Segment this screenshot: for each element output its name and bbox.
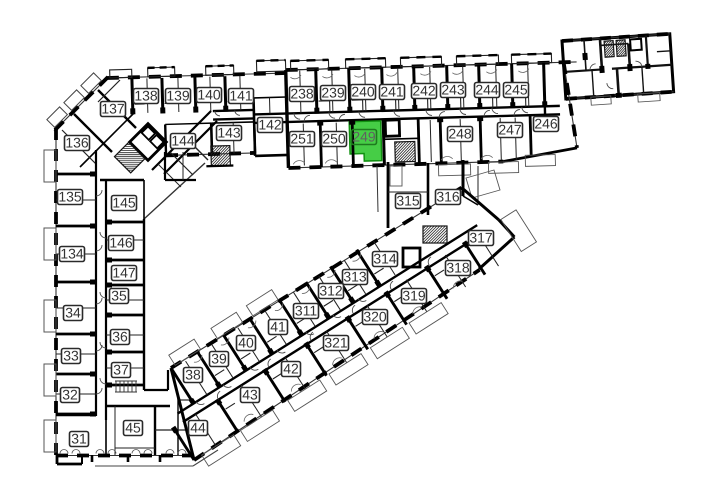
svg-text:147: 147: [112, 265, 136, 281]
svg-text:40: 40: [238, 335, 254, 351]
svg-text:251: 251: [290, 131, 314, 147]
svg-text:247: 247: [498, 122, 522, 138]
svg-text:311: 311: [295, 303, 318, 319]
svg-text:238: 238: [290, 86, 314, 102]
svg-text:143: 143: [217, 125, 241, 141]
svg-text:317: 317: [469, 230, 493, 246]
svg-text:36: 36: [112, 329, 128, 345]
svg-text:142: 142: [258, 117, 282, 133]
svg-text:239: 239: [321, 85, 345, 101]
svg-text:249: 249: [352, 129, 376, 145]
svg-text:33: 33: [63, 348, 79, 364]
svg-text:38: 38: [185, 367, 201, 383]
svg-text:136: 136: [65, 135, 89, 151]
svg-text:248: 248: [448, 126, 472, 142]
svg-text:31: 31: [71, 431, 87, 447]
svg-text:312: 312: [319, 283, 343, 299]
svg-text:146: 146: [109, 235, 133, 251]
svg-text:37: 37: [113, 362, 129, 378]
svg-text:250: 250: [322, 131, 346, 147]
svg-text:243: 243: [441, 82, 465, 98]
svg-text:246: 246: [534, 116, 558, 132]
svg-text:242: 242: [412, 83, 436, 99]
svg-text:315: 315: [396, 193, 420, 209]
svg-text:138: 138: [134, 88, 158, 104]
svg-text:320: 320: [363, 309, 387, 325]
svg-text:45: 45: [125, 420, 141, 436]
svg-text:34: 34: [65, 305, 81, 321]
svg-text:241: 241: [380, 84, 404, 100]
svg-text:321: 321: [324, 335, 348, 351]
svg-text:134: 134: [60, 246, 84, 262]
svg-text:316: 316: [436, 189, 460, 205]
svg-text:140: 140: [197, 87, 221, 103]
svg-text:313: 313: [343, 269, 367, 285]
svg-text:319: 319: [402, 288, 426, 304]
svg-text:139: 139: [166, 88, 190, 104]
svg-text:41: 41: [270, 319, 286, 335]
svg-text:39: 39: [211, 351, 227, 367]
svg-text:144: 144: [171, 133, 195, 149]
svg-text:137: 137: [101, 101, 125, 117]
svg-text:244: 244: [475, 82, 499, 98]
svg-text:141: 141: [229, 88, 253, 104]
svg-text:135: 135: [58, 189, 82, 205]
svg-text:44: 44: [190, 420, 206, 436]
svg-text:314: 314: [373, 251, 397, 267]
svg-text:42: 42: [283, 361, 299, 377]
svg-text:318: 318: [446, 260, 470, 276]
svg-text:245: 245: [504, 82, 528, 98]
svg-text:240: 240: [351, 84, 375, 100]
svg-text:145: 145: [112, 195, 136, 211]
svg-text:43: 43: [242, 387, 258, 403]
svg-text:32: 32: [62, 387, 78, 403]
svg-text:35: 35: [111, 288, 127, 304]
